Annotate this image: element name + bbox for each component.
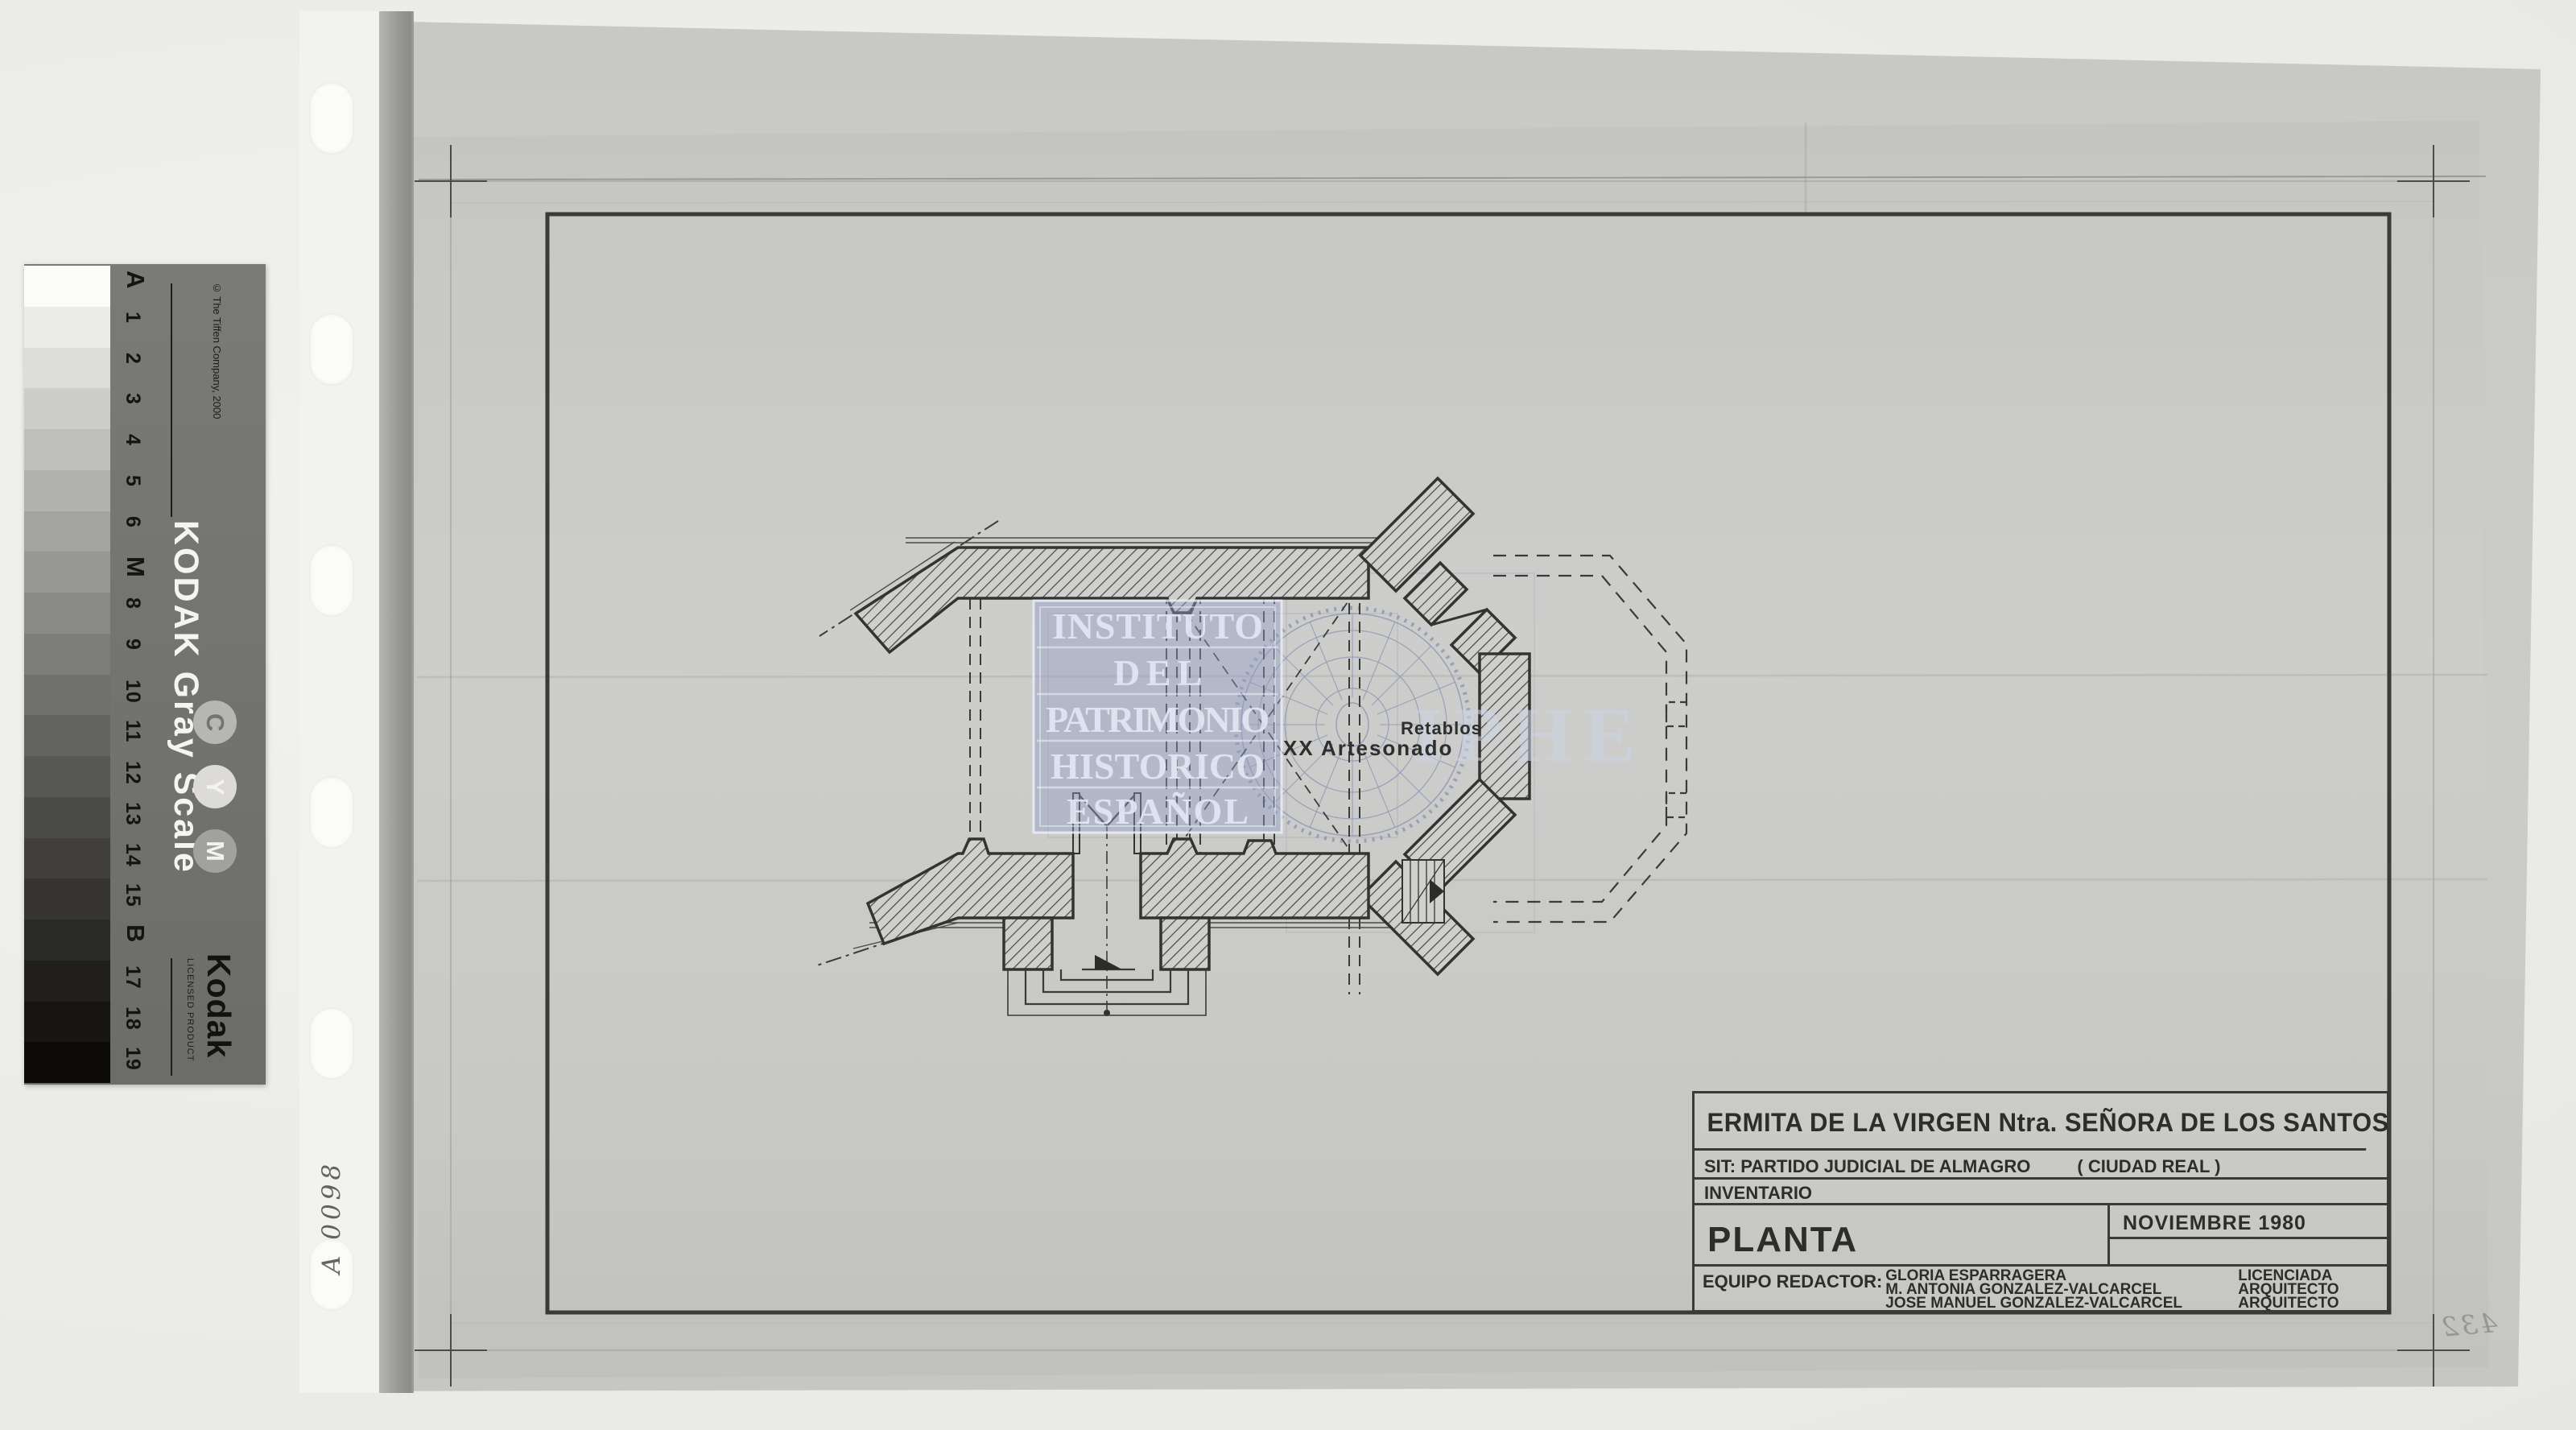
team-member: JOSE MANUEL GONZALEZ-VALCARCEL ARQUITECT… bbox=[1885, 1296, 2339, 1310]
sheet-title: ERMITA DE LA VIRGEN Ntra. SEÑORA DE LOS … bbox=[1695, 1093, 2366, 1151]
artesonado-label: XX Artesonado bbox=[1283, 736, 1453, 760]
handwritten-archive-number: A 0098 bbox=[317, 1113, 346, 1274]
stamp-line: HISTORICO bbox=[1051, 746, 1265, 787]
title-block: ERMITA DE LA VIRGEN Ntra. SEÑORA DE LOS … bbox=[1692, 1091, 2389, 1312]
member-role: ARQUITECTO bbox=[2238, 1296, 2339, 1310]
handwritten-corner-number: 432 bbox=[2438, 1307, 2498, 1343]
date-cell: NOVIEMBRE 1980 bbox=[2110, 1205, 2387, 1264]
stamp-line: ESPAÑOL bbox=[1067, 791, 1249, 832]
team-list: GLORIA ESPARRAGERA LICENCIADA M. ANTONIA… bbox=[1885, 1267, 2339, 1310]
scanned-archive-drawing: A123456M89101112131415B171819 KODAK Gray… bbox=[0, 0, 2576, 1430]
drawing-date: NOVIEMBRE 1980 bbox=[2110, 1205, 2387, 1239]
chancel-staircase bbox=[1402, 860, 1444, 923]
site-province: ( CIUDAD REAL ) bbox=[2077, 1156, 2220, 1176]
stamp-line: PATRIMONIO bbox=[1046, 699, 1269, 740]
team-label: EQUIPO REDACTOR: bbox=[1695, 1267, 1885, 1310]
retablos-label: Retablos bbox=[1401, 718, 1482, 738]
porch-wall-left bbox=[1004, 918, 1052, 969]
inventory-label: INVENTARIO bbox=[1695, 1180, 2387, 1205]
wall-ne-stub bbox=[1360, 478, 1473, 591]
stamp-line: DEL bbox=[1113, 652, 1202, 693]
team-row: EQUIPO REDACTOR: GLORIA ESPARRAGERA LICE… bbox=[1695, 1267, 2387, 1310]
wall-south-east-segment bbox=[1141, 839, 1368, 918]
site-label: SIT: PARTIDO JUDICIAL DE ALMAGRO bbox=[1704, 1156, 2030, 1176]
stamp-line: INSTITUTO bbox=[1052, 605, 1263, 647]
institute-stamp: INSTITUTO DEL PATRIMONIO HISTORICO ESPAÑ… bbox=[1034, 601, 1282, 833]
porch-wall-right bbox=[1161, 918, 1209, 969]
drawing-name: PLANTA bbox=[1695, 1205, 2110, 1264]
site-row: SIT: PARTIDO JUDICIAL DE ALMAGRO( CIUDAD… bbox=[1695, 1151, 2387, 1180]
member-name: JOSE MANUEL GONZALEZ-VALCARCEL bbox=[1885, 1296, 2238, 1310]
drawing-name-row: PLANTA NOVIEMBRE 1980 bbox=[1695, 1205, 2387, 1267]
north-arrow bbox=[1095, 955, 1122, 969]
